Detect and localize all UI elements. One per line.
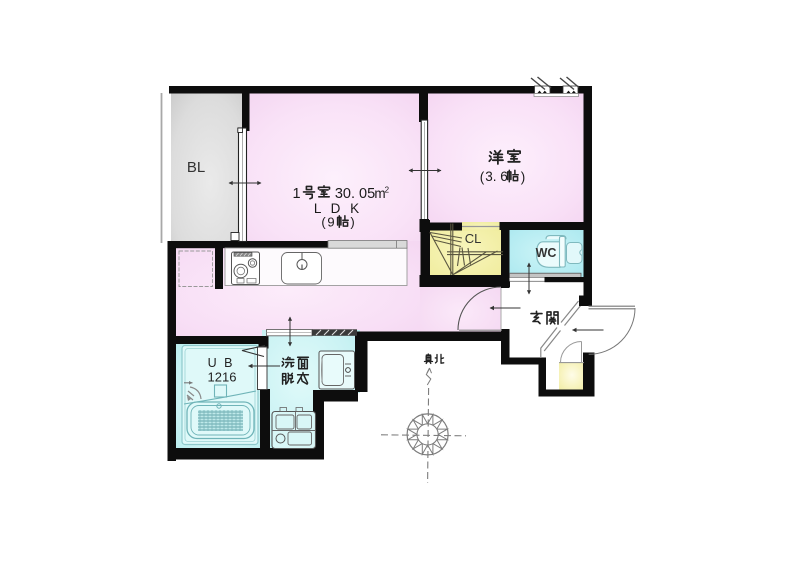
svg-text:): ) xyxy=(350,215,354,230)
svg-text:WC: WC xyxy=(536,246,557,260)
svg-text:(: ( xyxy=(480,170,485,185)
svg-text:): ) xyxy=(521,170,526,185)
svg-text:1216: 1216 xyxy=(208,370,237,385)
svg-text:(: ( xyxy=(321,215,326,230)
svg-text:30. 05: 30. 05 xyxy=(335,186,375,202)
svg-text:1: 1 xyxy=(292,186,300,202)
svg-text:U B: U B xyxy=(208,356,235,370)
svg-text:CL: CL xyxy=(465,231,482,246)
svg-text:2: 2 xyxy=(385,186,390,195)
svg-text:3. 6: 3. 6 xyxy=(485,169,508,184)
svg-text:BL: BL xyxy=(187,159,205,176)
svg-text:9: 9 xyxy=(327,215,334,230)
